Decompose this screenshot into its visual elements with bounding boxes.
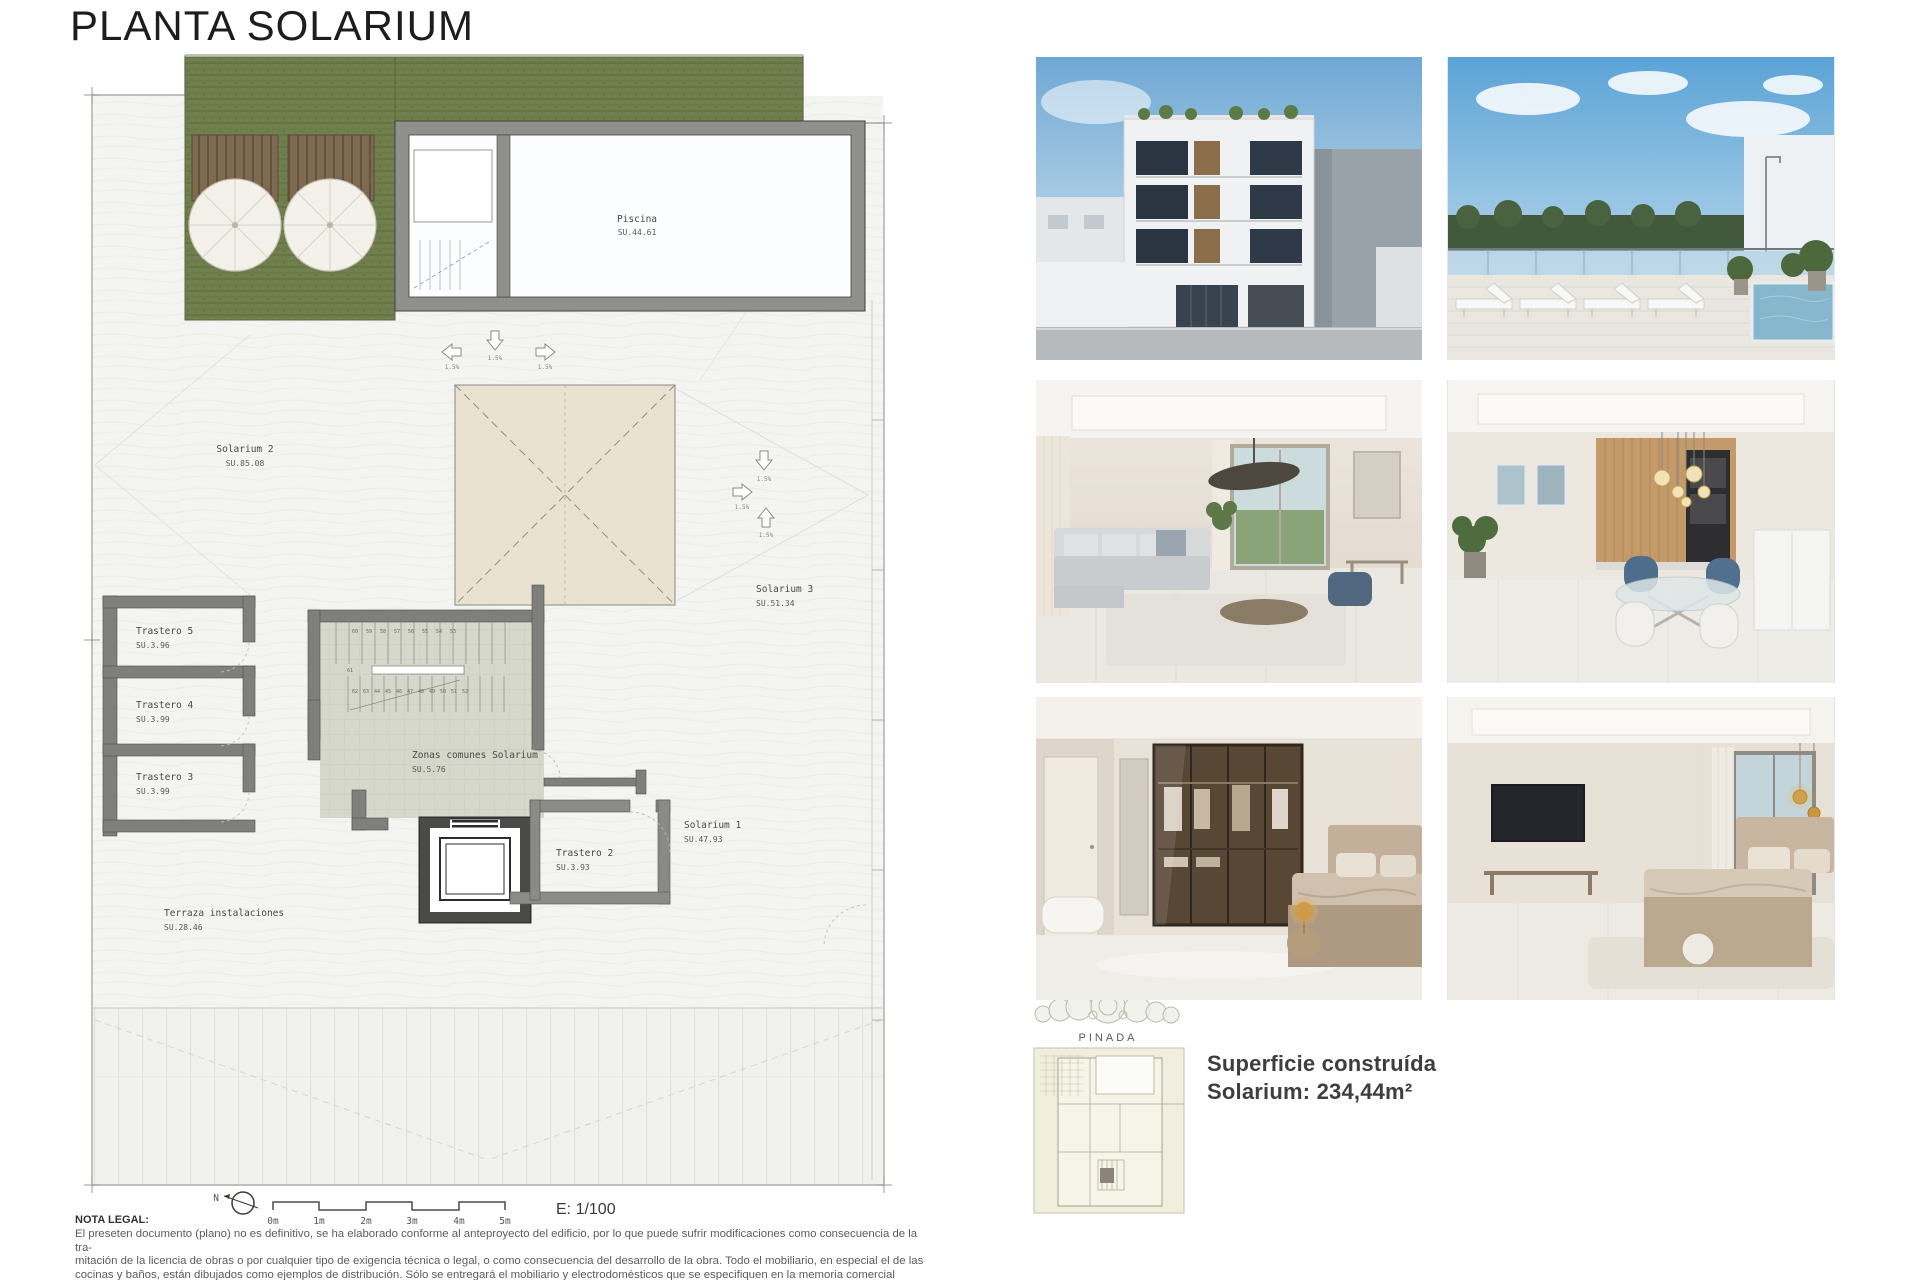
svg-text:62: 62 <box>352 689 358 695</box>
elevator <box>420 818 530 922</box>
label-terraza: Terraza instalaciones <box>164 908 284 919</box>
label-solarium3-area: SU.51.34 <box>756 599 795 608</box>
svg-text:1.5%: 1.5% <box>488 355 503 362</box>
photo-bedroom-window <box>1447 697 1835 1000</box>
svg-text:46: 46 <box>396 689 402 695</box>
label-solarium2-area: SU.85.08 <box>226 459 265 468</box>
label-piscina: Piscina <box>617 214 657 225</box>
label-trastero3-area: SU.3.99 <box>136 787 170 796</box>
photo-rooftop-terrace <box>1447 57 1835 360</box>
summary-line1: Superficie construída <box>1207 1050 1436 1078</box>
legal-note: NOTA LEGAL: El preseten documento (plano… <box>75 1214 935 1280</box>
svg-text:60: 60 <box>352 629 358 635</box>
bottom-terrace-paving <box>93 1008 883 1184</box>
svg-text:45: 45 <box>385 689 391 695</box>
parasol-icon <box>189 179 281 271</box>
label-trastero2-area: SU.3.93 <box>556 863 590 872</box>
svg-text:48: 48 <box>418 689 424 695</box>
photo-dining-kitchen <box>1447 380 1835 683</box>
svg-text:53: 53 <box>450 629 456 635</box>
svg-text:51: 51 <box>451 689 457 695</box>
label-trastero5-area: SU.3.96 <box>136 641 170 650</box>
photo-living-room <box>1036 380 1422 683</box>
built-surface-summary: Superficie construída Solarium: 234,44m² <box>1207 1050 1436 1106</box>
svg-text:57: 57 <box>394 629 400 635</box>
svg-text:49: 49 <box>429 689 435 695</box>
svg-text:56: 56 <box>408 629 414 635</box>
site-plan-mini <box>1034 1048 1184 1213</box>
legal-heading: NOTA LEGAL: <box>75 1214 935 1228</box>
label-solarium3: Solarium 3 <box>756 584 813 595</box>
svg-text:1.5%: 1.5% <box>759 532 774 539</box>
skylight <box>455 385 675 605</box>
label-solarium2: Solarium 2 <box>216 444 273 455</box>
label-piscina-area: SU.44.61 <box>618 228 657 237</box>
north-compass-icon <box>224 1192 258 1214</box>
pool: Piscina SU.44.61 <box>395 121 865 311</box>
brochure-page: PLANTA SOLARIUM <box>0 0 1920 1280</box>
label-trastero5: Trastero 5 <box>136 626 193 637</box>
label-solarium1-area: SU.47.93 <box>684 835 723 844</box>
summary-line2: Solarium: 234,44m² <box>1207 1078 1436 1106</box>
svg-text:1.5%: 1.5% <box>735 504 750 511</box>
photo-bedroom-wardrobe <box>1036 697 1422 1000</box>
label-trastero4-area: SU.3.99 <box>136 715 170 724</box>
svg-text:44: 44 <box>374 689 380 695</box>
legal-line: mitación de la licencia de obras o por c… <box>75 1255 935 1269</box>
label-zonas-comunes-area: SU.5.76 <box>412 765 446 774</box>
svg-text:1.5%: 1.5% <box>445 364 460 371</box>
svg-text:59: 59 <box>366 629 372 635</box>
parasol-icon <box>284 179 376 271</box>
label-terraza-area: SU.28.46 <box>164 923 203 932</box>
svg-text:1.5%: 1.5% <box>538 364 553 371</box>
label-trastero2: Trastero 2 <box>556 848 613 859</box>
site-plan-label: PINADA <box>1079 1032 1138 1044</box>
north-label: N <box>213 1193 219 1204</box>
photo-building-exterior <box>1036 57 1422 360</box>
label-zonas-comunes: Zonas comunes Solarium <box>412 750 538 761</box>
svg-text:63: 63 <box>363 689 369 695</box>
svg-text:52: 52 <box>462 689 468 695</box>
label-solarium1: Solarium 1 <box>684 820 741 831</box>
legal-line: cocinas y baños, están dibujados como ej… <box>75 1269 935 1280</box>
label-trastero4: Trastero 4 <box>136 700 193 711</box>
svg-text:61: 61 <box>347 668 353 674</box>
legal-line: El preseten documento (plano) no es defi… <box>75 1228 935 1256</box>
label-trastero3: Trastero 3 <box>136 772 193 783</box>
svg-text:55: 55 <box>422 629 428 635</box>
svg-text:50: 50 <box>440 689 446 695</box>
svg-text:47: 47 <box>407 689 413 695</box>
svg-text:58: 58 <box>380 629 386 635</box>
svg-text:1.5%: 1.5% <box>757 476 772 483</box>
svg-text:54: 54 <box>436 629 442 635</box>
